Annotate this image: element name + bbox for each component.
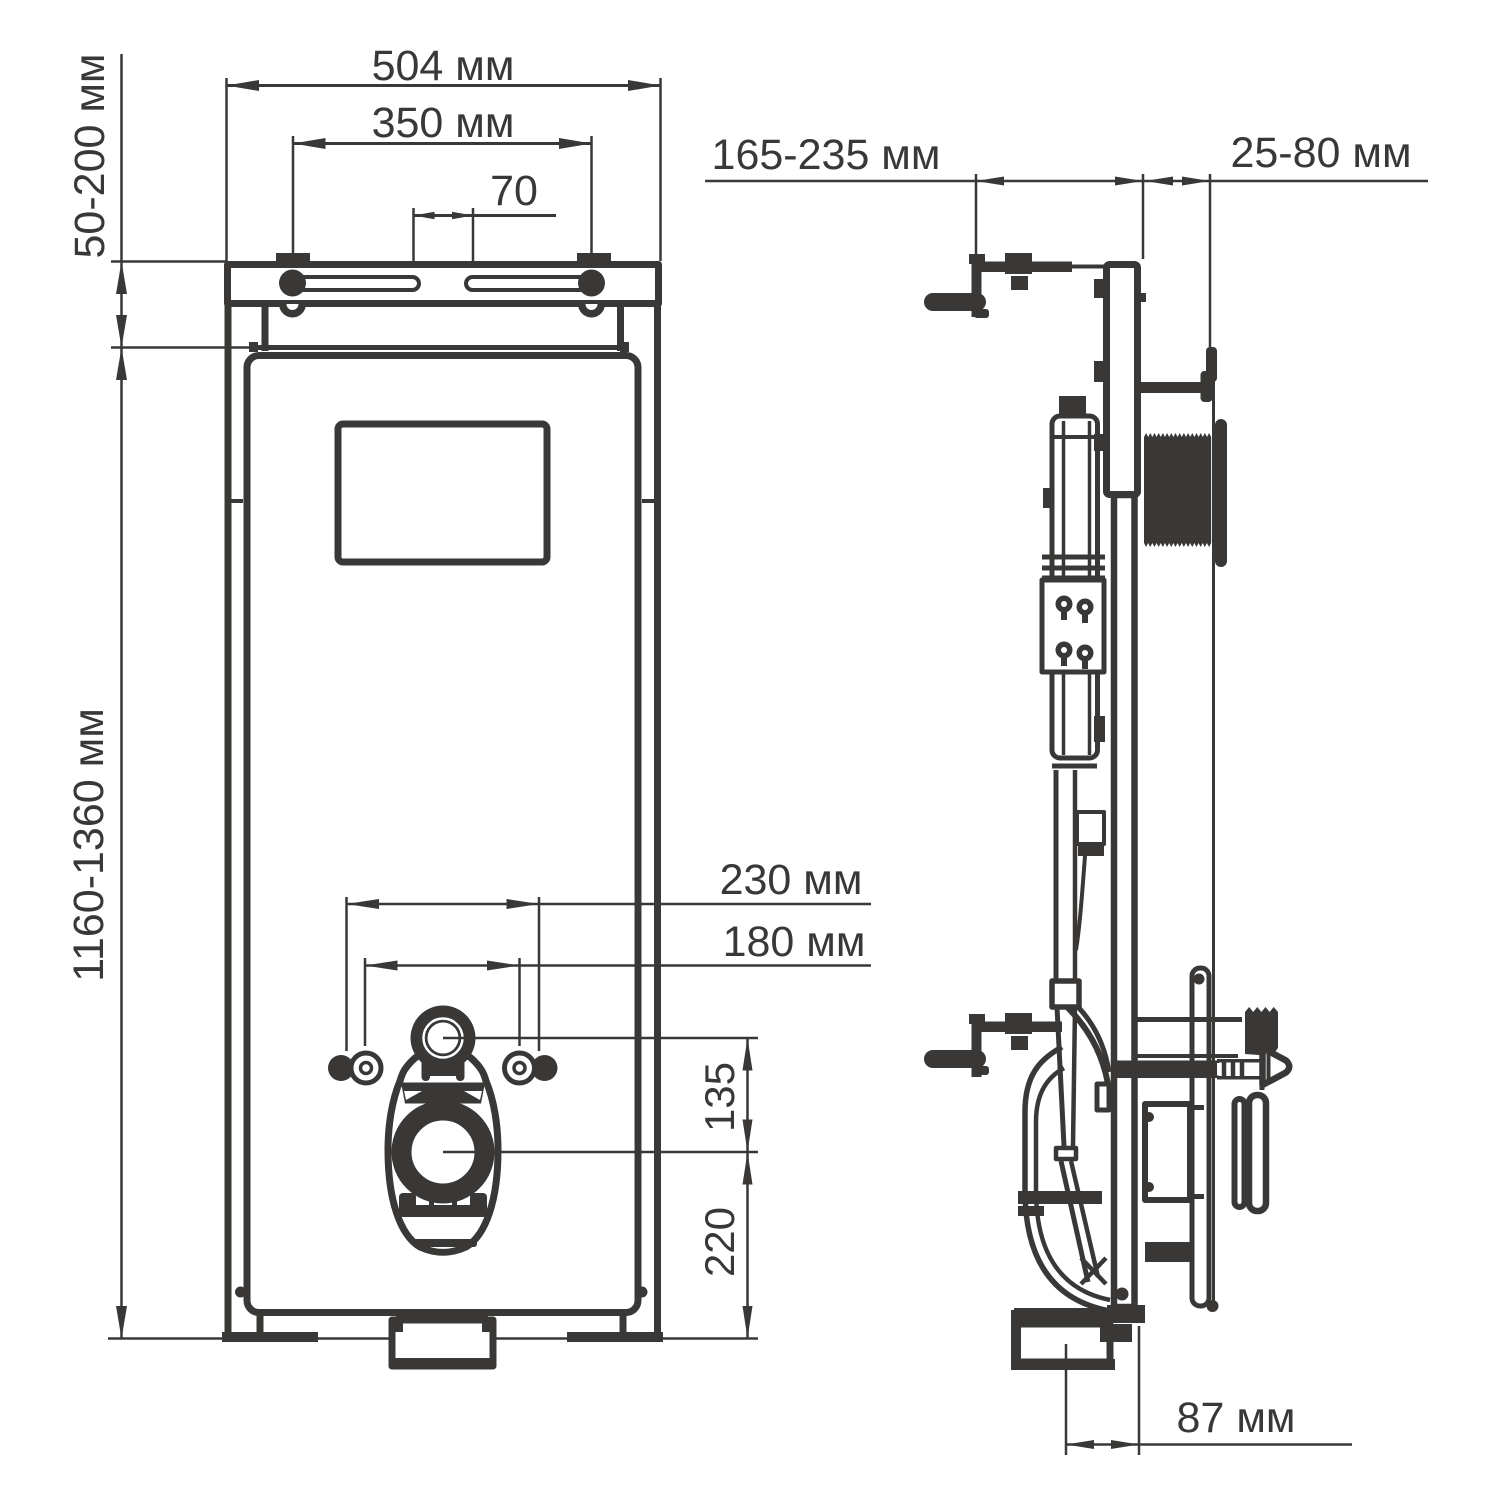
- svg-text:165-235 мм: 165-235 мм: [712, 131, 941, 179]
- svg-text:50-200 мм: 50-200 мм: [66, 54, 114, 259]
- svg-text:25-80 мм: 25-80 мм: [1230, 129, 1411, 177]
- svg-text:1160-1360 мм: 1160-1360 мм: [65, 708, 113, 982]
- svg-text:230 мм: 230 мм: [720, 856, 863, 904]
- svg-text:220: 220: [696, 1207, 743, 1277]
- svg-text:87 мм: 87 мм: [1177, 1394, 1296, 1442]
- svg-text:180 мм: 180 мм: [723, 918, 866, 966]
- svg-text:350 мм: 350 мм: [372, 99, 515, 147]
- svg-text:70: 70: [490, 167, 538, 215]
- svg-text:135: 135: [696, 1062, 743, 1132]
- svg-text:504 мм: 504 мм: [372, 42, 515, 90]
